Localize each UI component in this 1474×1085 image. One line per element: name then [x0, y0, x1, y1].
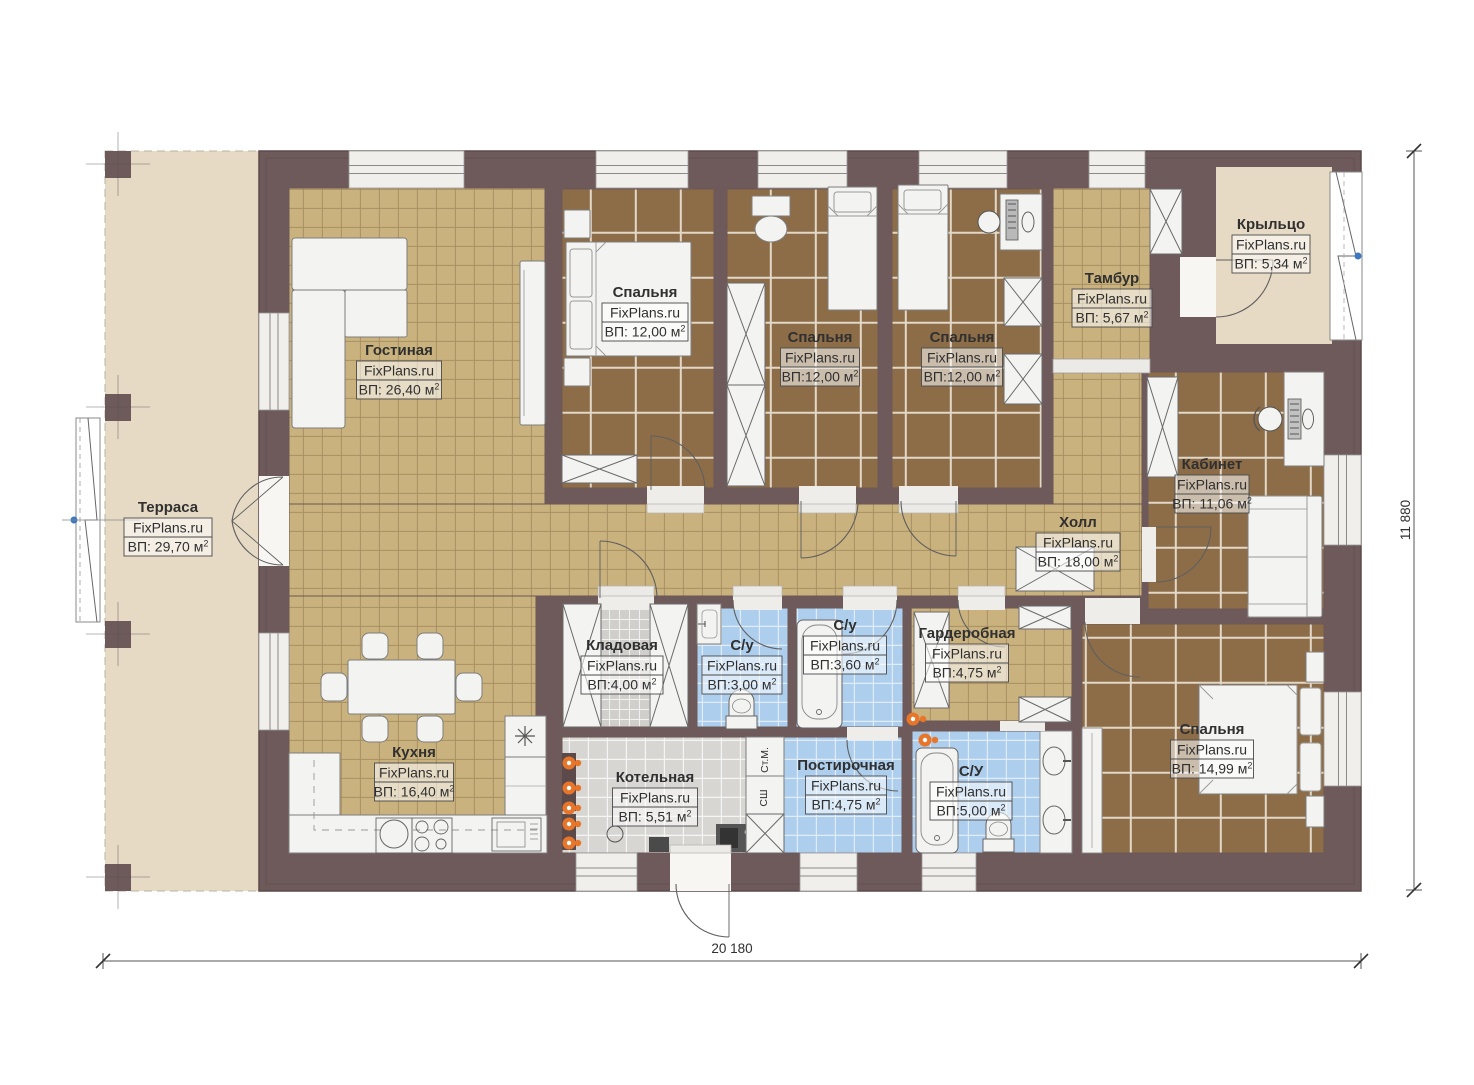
svg-text:11 880: 11 880 — [1398, 500, 1413, 540]
svg-text:ВП:4,75 м2: ВП:4,75 м2 — [932, 665, 1001, 681]
svg-text:ВП:12,00 м2: ВП:12,00 м2 — [782, 369, 859, 385]
svg-text:Спальня: Спальня — [788, 329, 853, 346]
svg-text:FixPlans.ru: FixPlans.ru — [379, 765, 449, 781]
svg-text:FixPlans.ru: FixPlans.ru — [364, 363, 434, 379]
svg-text:FixPlans.ru: FixPlans.ru — [133, 520, 203, 536]
svg-text:Кабинет: Кабинет — [1182, 456, 1243, 473]
svg-text:FixPlans.ru: FixPlans.ru — [620, 790, 690, 806]
svg-text:Спальня: Спальня — [930, 329, 995, 346]
svg-text:FixPlans.ru: FixPlans.ru — [936, 784, 1006, 800]
svg-text:FixPlans.ru: FixPlans.ru — [927, 350, 997, 366]
svg-text:С/У: С/У — [959, 763, 984, 780]
svg-text:FixPlans.ru: FixPlans.ru — [811, 778, 881, 794]
svg-text:ВП: 5,34 м2: ВП: 5,34 м2 — [1235, 256, 1308, 272]
svg-text:СШ: СШ — [758, 789, 770, 806]
svg-text:Спальня: Спальня — [1180, 721, 1245, 738]
svg-text:Ст.М.: Ст.М. — [759, 747, 771, 773]
svg-text:FixPlans.ru: FixPlans.ru — [1043, 535, 1113, 551]
svg-text:Кладовая: Кладовая — [586, 637, 658, 654]
svg-text:С/у: С/у — [730, 637, 754, 654]
svg-text:ВП: 5,67 м2: ВП: 5,67 м2 — [1076, 310, 1149, 326]
svg-text:Спальня: Спальня — [613, 284, 678, 301]
svg-text:ВП:3,00 м2: ВП:3,00 м2 — [707, 677, 776, 693]
svg-text:ВП: 12,00 м2: ВП: 12,00 м2 — [605, 324, 686, 340]
svg-text:Тамбур: Тамбур — [1085, 270, 1139, 287]
svg-text:ВП:12,00 м2: ВП:12,00 м2 — [924, 369, 1001, 385]
svg-text:ВП: 14,99 м2: ВП: 14,99 м2 — [1172, 761, 1253, 777]
svg-text:20 180: 20 180 — [711, 941, 752, 956]
svg-text:ВП: 29,70 м2: ВП: 29,70 м2 — [128, 539, 209, 555]
svg-text:ВП:3,60 м2: ВП:3,60 м2 — [810, 657, 879, 673]
svg-text:Терраса: Терраса — [138, 499, 199, 516]
svg-text:FixPlans.ru: FixPlans.ru — [810, 638, 880, 654]
svg-text:ВП: 11,06 м2: ВП: 11,06 м2 — [1172, 496, 1252, 512]
svg-text:ВП:4,75 м2: ВП:4,75 м2 — [811, 797, 880, 813]
svg-text:FixPlans.ru: FixPlans.ru — [1077, 291, 1147, 307]
svg-text:ВП: 18,00 м2: ВП: 18,00 м2 — [1038, 554, 1119, 570]
svg-text:FixPlans.ru: FixPlans.ru — [932, 646, 1002, 662]
svg-text:FixPlans.ru: FixPlans.ru — [610, 305, 680, 321]
svg-text:ВП:4,00 м2: ВП:4,00 м2 — [587, 677, 656, 693]
svg-text:Котельная: Котельная — [616, 769, 695, 786]
svg-text:Гардеробная: Гардеробная — [918, 625, 1015, 642]
svg-text:С/у: С/у — [833, 617, 857, 634]
svg-text:ВП: 16,40 м2: ВП: 16,40 м2 — [374, 784, 455, 800]
svg-text:ВП: 26,40 м2: ВП: 26,40 м2 — [359, 382, 440, 398]
svg-text:FixPlans.ru: FixPlans.ru — [1236, 237, 1306, 253]
svg-text:Кухня: Кухня — [392, 744, 436, 761]
svg-text:Крыльцо: Крыльцо — [1237, 216, 1305, 233]
svg-text:ВП:5,00 м2: ВП:5,00 м2 — [936, 803, 1005, 819]
svg-text:FixPlans.ru: FixPlans.ru — [1177, 477, 1247, 493]
svg-text:FixPlans.ru: FixPlans.ru — [707, 658, 777, 674]
svg-text:Холл: Холл — [1059, 514, 1097, 531]
svg-text:FixPlans.ru: FixPlans.ru — [587, 658, 657, 674]
svg-text:Постирочная: Постирочная — [797, 757, 894, 774]
svg-text:FixPlans.ru: FixPlans.ru — [785, 350, 855, 366]
svg-text:FixPlans.ru: FixPlans.ru — [1177, 742, 1247, 758]
svg-text:ВП: 5,51 м2: ВП: 5,51 м2 — [619, 809, 692, 825]
svg-text:Гостиная: Гостиная — [365, 342, 433, 359]
